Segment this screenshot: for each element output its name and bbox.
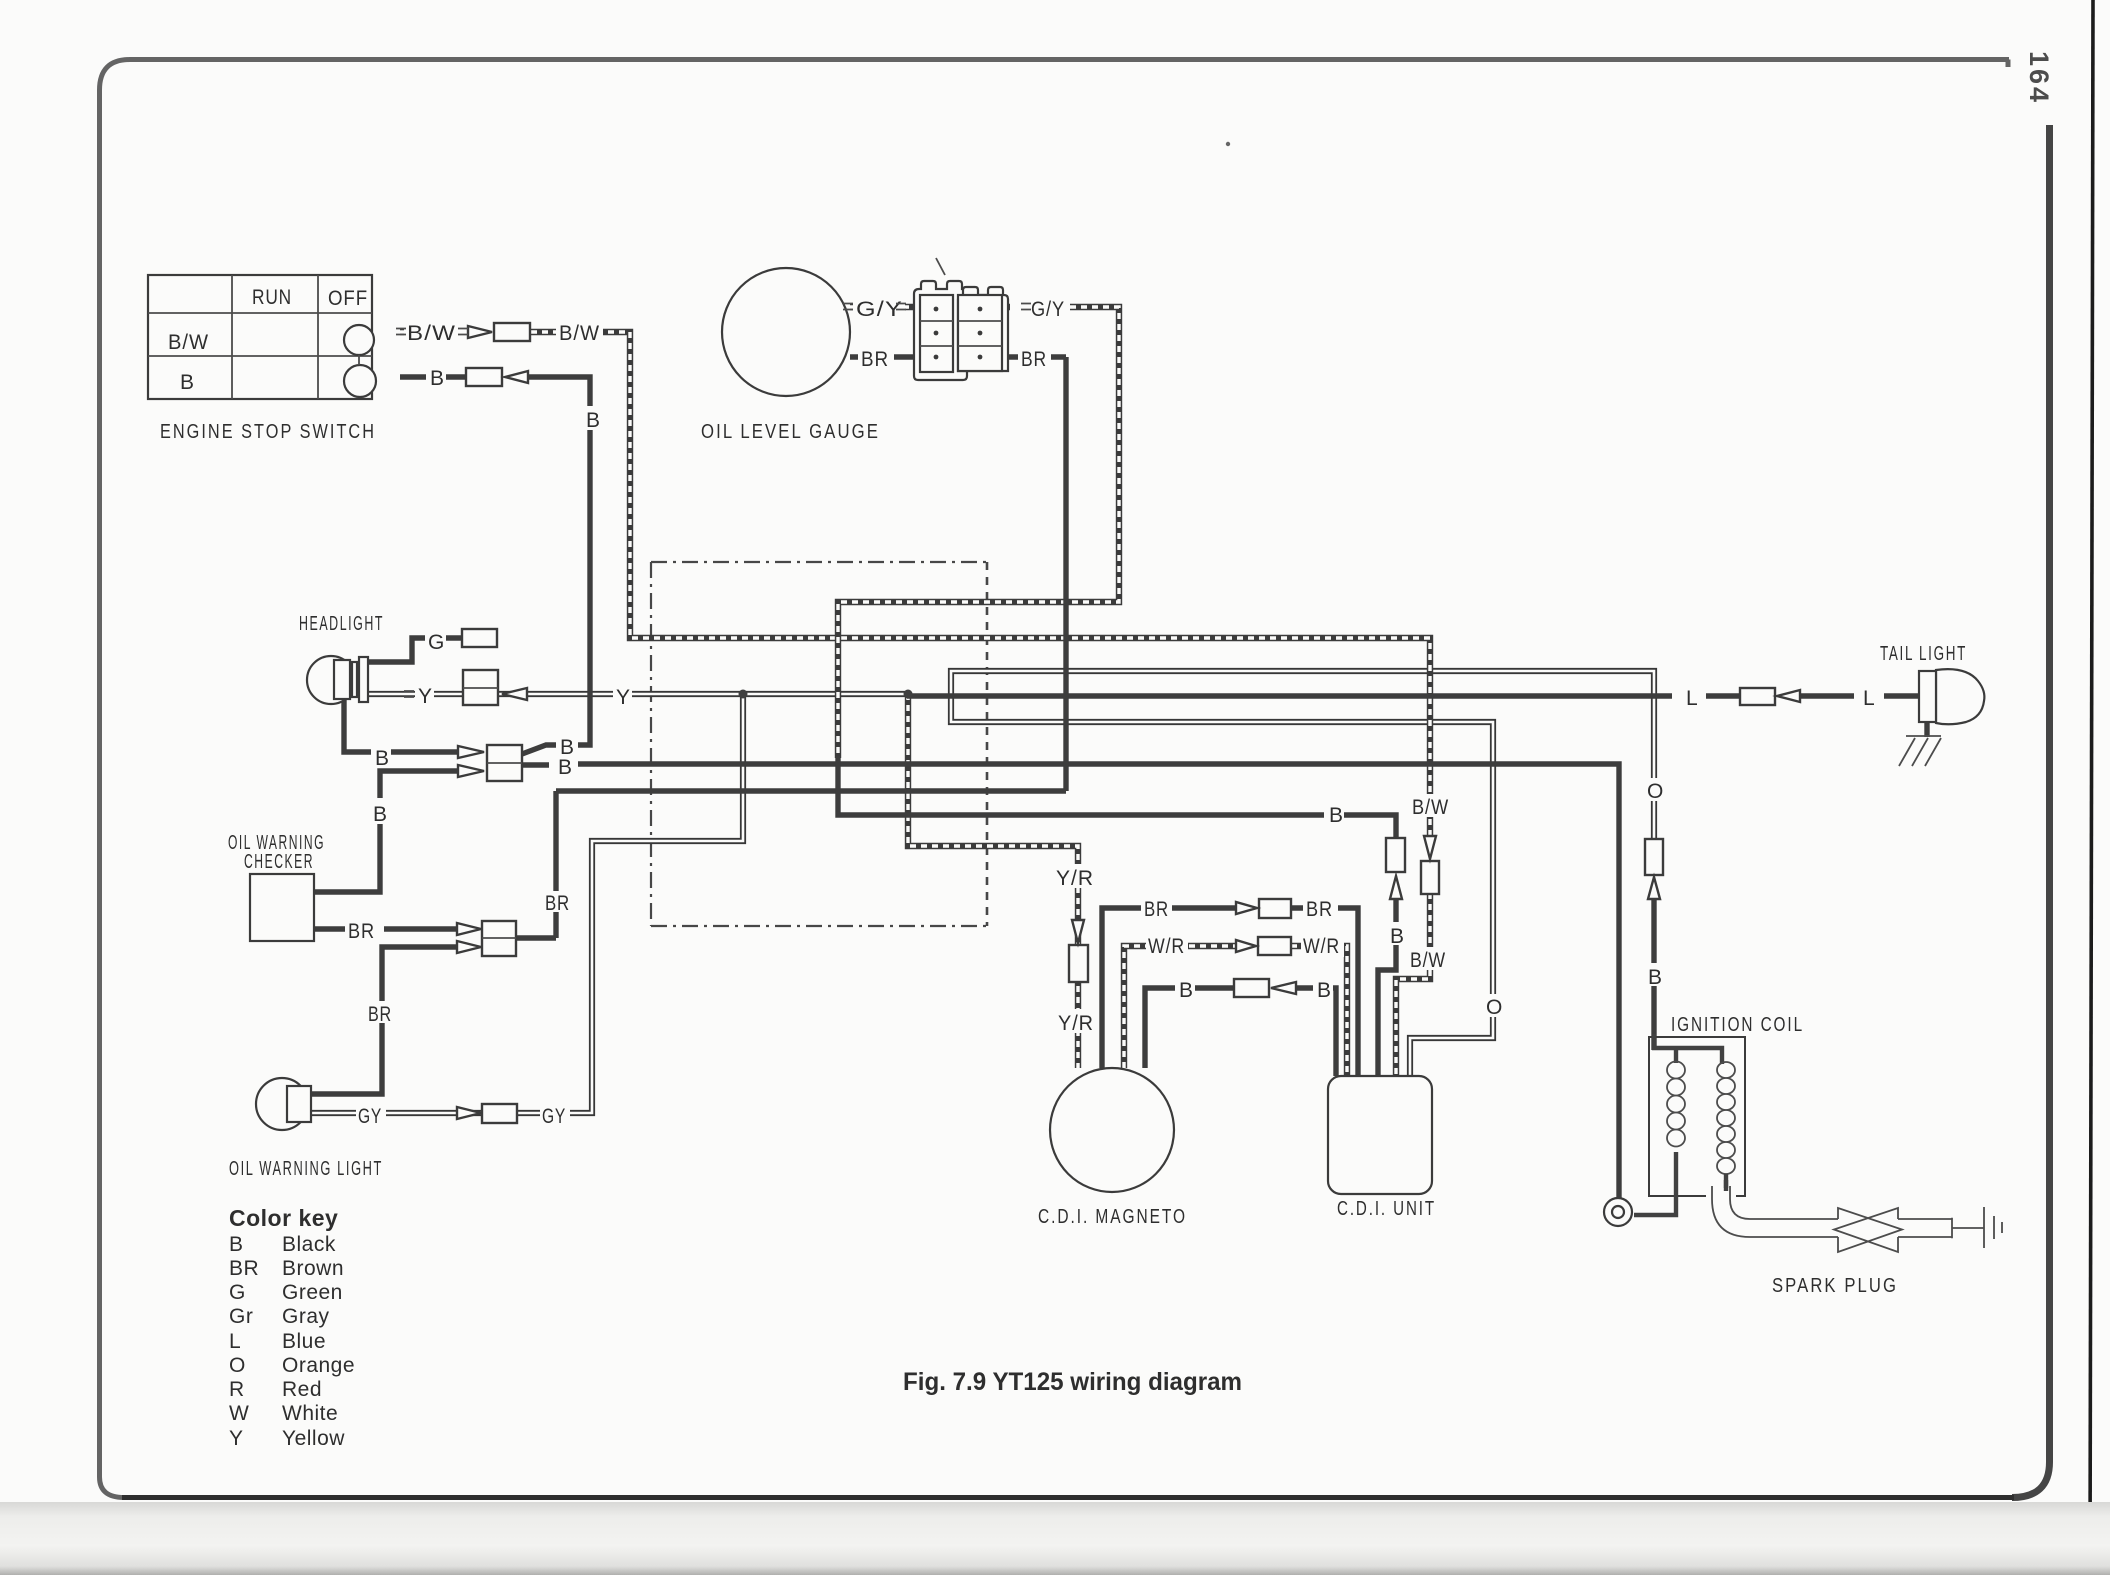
svg-text:Y: Y [418,685,433,708]
svg-text:B: B [229,1233,244,1256]
svg-text:Black: Black [282,1233,336,1256]
svg-text:ENGINE STOP SWITCH: ENGINE STOP SWITCH [160,421,376,443]
svg-text:Yellow: Yellow [282,1427,345,1450]
svg-text:B: B [1317,979,1332,1002]
svg-text:Y/R: Y/R [1058,1012,1094,1035]
svg-text:B: B [375,747,390,770]
svg-text:Y/R: Y/R [1056,867,1094,890]
svg-text:SPARK PLUG: SPARK PLUG [1772,1275,1898,1297]
svg-text:B/W: B/W [168,331,209,354]
svg-text:GY: GY [542,1105,566,1128]
svg-text:HEADLIGHT: HEADLIGHT [299,613,384,635]
svg-text:B/W: B/W [407,322,456,345]
svg-text:L: L [1863,687,1876,710]
svg-text:TAIL LIGHT: TAIL LIGHT [1880,643,1967,665]
svg-text:R: R [229,1378,245,1401]
svg-text:O: O [229,1354,246,1377]
svg-text:B: B [430,367,445,390]
svg-text:B: B [373,803,388,826]
svg-text:BR: BR [229,1257,259,1280]
svg-text:Gray: Gray [282,1305,330,1328]
svg-text:OFF: OFF [328,287,368,310]
svg-text:CHECKER: CHECKER [244,851,314,873]
svg-text:164: 164 [2024,51,2054,105]
svg-text:Color key: Color key [229,1205,338,1231]
svg-text:BR: BR [1144,898,1169,921]
svg-text:B/W: B/W [1410,949,1446,972]
svg-text:Y: Y [229,1427,244,1450]
svg-text:BR: BR [861,348,889,371]
svg-text:W/R: W/R [1303,935,1340,958]
svg-text:G: G [229,1281,246,1304]
svg-text:O: O [1486,996,1503,1019]
svg-text:OIL WARNING LIGHT: OIL WARNING LIGHT [229,1158,383,1180]
svg-text:B: B [1648,966,1663,989]
svg-text:BR: BR [368,1003,392,1026]
svg-text:G/Y: G/Y [1031,298,1065,321]
svg-text:G: G [428,631,445,654]
svg-text:OIL LEVEL GAUGE: OIL LEVEL GAUGE [701,421,880,443]
svg-text:B/W: B/W [1412,796,1449,819]
svg-text:IGNITION COIL: IGNITION COIL [1671,1014,1804,1036]
svg-text:C.D.I. MAGNETO: C.D.I. MAGNETO [1038,1206,1187,1228]
svg-text:B: B [558,756,573,779]
svg-text:B: B [1329,804,1344,827]
svg-text:Red: Red [282,1378,322,1401]
svg-text:C.D.I. UNIT: C.D.I. UNIT [1337,1198,1436,1220]
svg-text:BR: BR [348,920,375,943]
svg-text:B/W: B/W [559,322,600,345]
svg-text:Brown: Brown [282,1257,344,1280]
svg-text:Orange: Orange [282,1354,355,1377]
svg-text:White: White [282,1402,338,1425]
svg-text:BR: BR [545,892,570,915]
svg-text:Blue: Blue [282,1330,326,1353]
svg-text:B: B [586,409,601,432]
svg-text:BR: BR [1021,348,1047,371]
svg-text:W: W [229,1402,249,1425]
svg-text:B: B [1179,979,1194,1002]
svg-text:L: L [229,1330,241,1353]
svg-text:B: B [180,371,195,394]
svg-text:L: L [1686,687,1699,710]
svg-text:GY: GY [358,1105,382,1128]
svg-text:Green: Green [282,1281,343,1304]
svg-text:Fig. 7.9 YT125 wiring diagram: Fig. 7.9 YT125 wiring diagram [903,1368,1242,1396]
svg-text:BR: BR [1306,898,1333,921]
svg-text:B: B [1390,925,1405,948]
svg-text:Gr: Gr [229,1305,253,1328]
svg-text:RUN: RUN [252,286,292,309]
svg-text:G/Y: G/Y [856,298,903,321]
svg-text:O: O [1647,780,1664,803]
svg-text:W/R: W/R [1148,935,1185,958]
svg-text:Y: Y [616,686,631,709]
